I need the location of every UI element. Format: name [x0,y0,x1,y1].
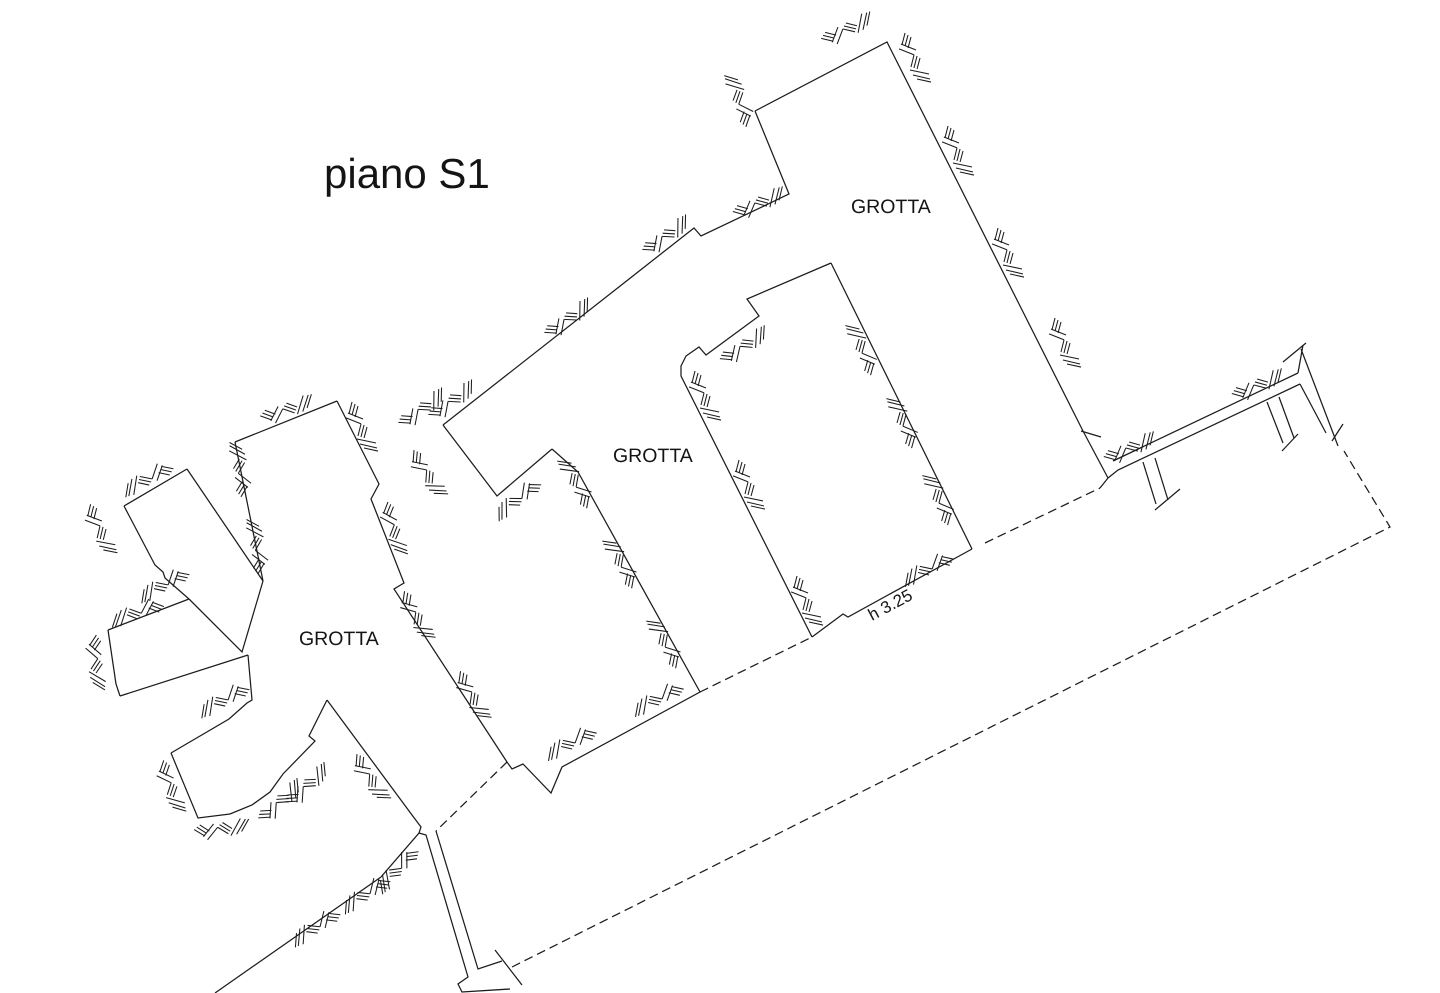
svg-text:GROTTA: GROTTA [851,196,931,218]
svg-text:piano S1: piano S1 [324,150,490,197]
svg-text:GROTTA: GROTTA [299,628,379,650]
svg-text:GROTTA: GROTTA [613,445,693,467]
